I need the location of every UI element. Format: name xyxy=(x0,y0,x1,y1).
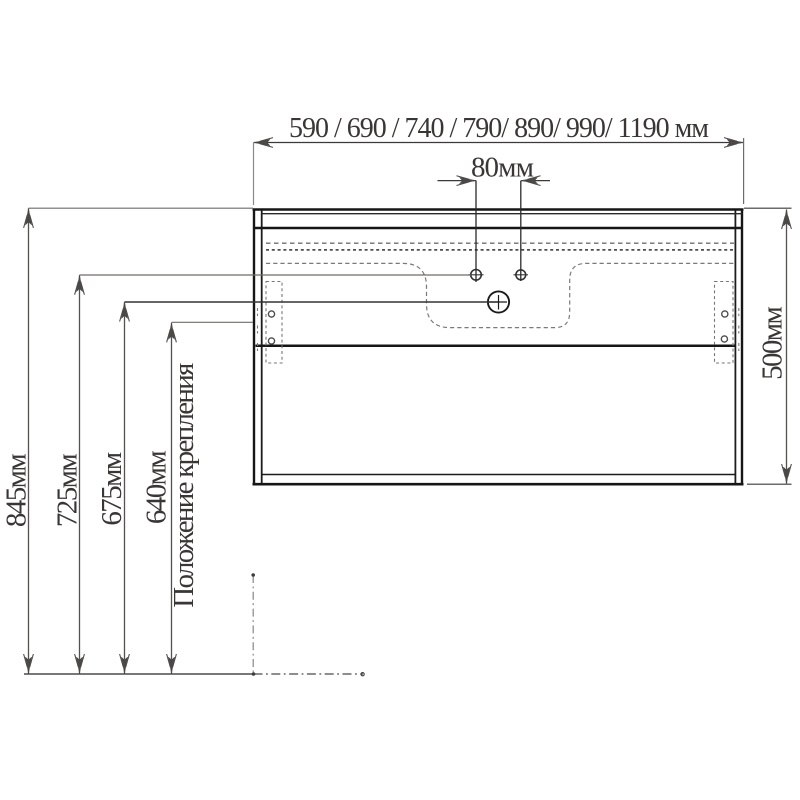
svg-text:725мм: 725мм xyxy=(52,454,84,527)
svg-text:590 / 690 / 740 / 790/ 890/ 99: 590 / 690 / 740 / 790/ 890/ 990/ 1190 мм xyxy=(289,113,709,144)
svg-text:500мм: 500мм xyxy=(757,306,789,379)
svg-text:80мм: 80мм xyxy=(471,152,534,184)
svg-text:675мм: 675мм xyxy=(96,452,128,525)
svg-text:845мм: 845мм xyxy=(1,454,33,527)
svg-text:Положение крепления: Положение крепления xyxy=(168,363,200,608)
